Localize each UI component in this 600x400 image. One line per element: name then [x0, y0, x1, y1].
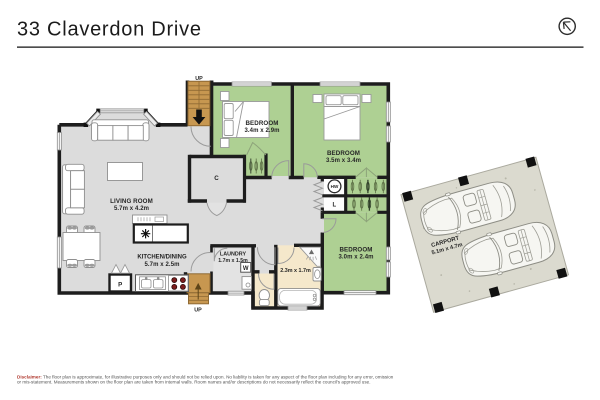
svg-text:2.3m x 1.7m: 2.3m x 1.7m: [280, 268, 311, 274]
svg-text:BEDROOM: BEDROOM: [339, 246, 372, 253]
svg-text:LAUNDRY: LAUNDRY: [220, 252, 247, 258]
svg-text:5.7m x 4.2m: 5.7m x 4.2m: [114, 206, 149, 212]
svg-text:HW: HW: [331, 184, 339, 189]
svg-text:BEDROOM: BEDROOM: [245, 120, 278, 127]
svg-text:C: C: [214, 175, 219, 182]
svg-text:KITCHEN/DINING: KITCHEN/DINING: [137, 254, 187, 260]
svg-text:5.7m x 2.5m: 5.7m x 2.5m: [144, 262, 179, 268]
svg-text:or mis-statement. Measurements: or mis-statement. Measurements shown on …: [17, 380, 371, 385]
svg-text:L: L: [332, 203, 336, 209]
svg-text:UP: UP: [195, 76, 203, 82]
svg-text:3.4m x 2.9m: 3.4m x 2.9m: [244, 128, 279, 134]
svg-text:3.0m x 2.4m: 3.0m x 2.4m: [338, 255, 373, 261]
svg-text:Disclaimer: The floor plan is: Disclaimer: The floor plan is approximat…: [17, 374, 394, 379]
svg-text:W: W: [243, 266, 249, 272]
svg-text:33 Claverdon Drive: 33 Claverdon Drive: [17, 19, 202, 41]
svg-text:1.7m x 1.5m: 1.7m x 1.5m: [218, 258, 248, 264]
svg-text:BEDROOM: BEDROOM: [327, 150, 360, 157]
svg-text:P: P: [118, 282, 122, 289]
svg-text:3.5m x 3.4m: 3.5m x 3.4m: [326, 158, 361, 164]
svg-text:UP: UP: [194, 308, 202, 314]
svg-text:LIVING ROOM: LIVING ROOM: [110, 198, 153, 205]
